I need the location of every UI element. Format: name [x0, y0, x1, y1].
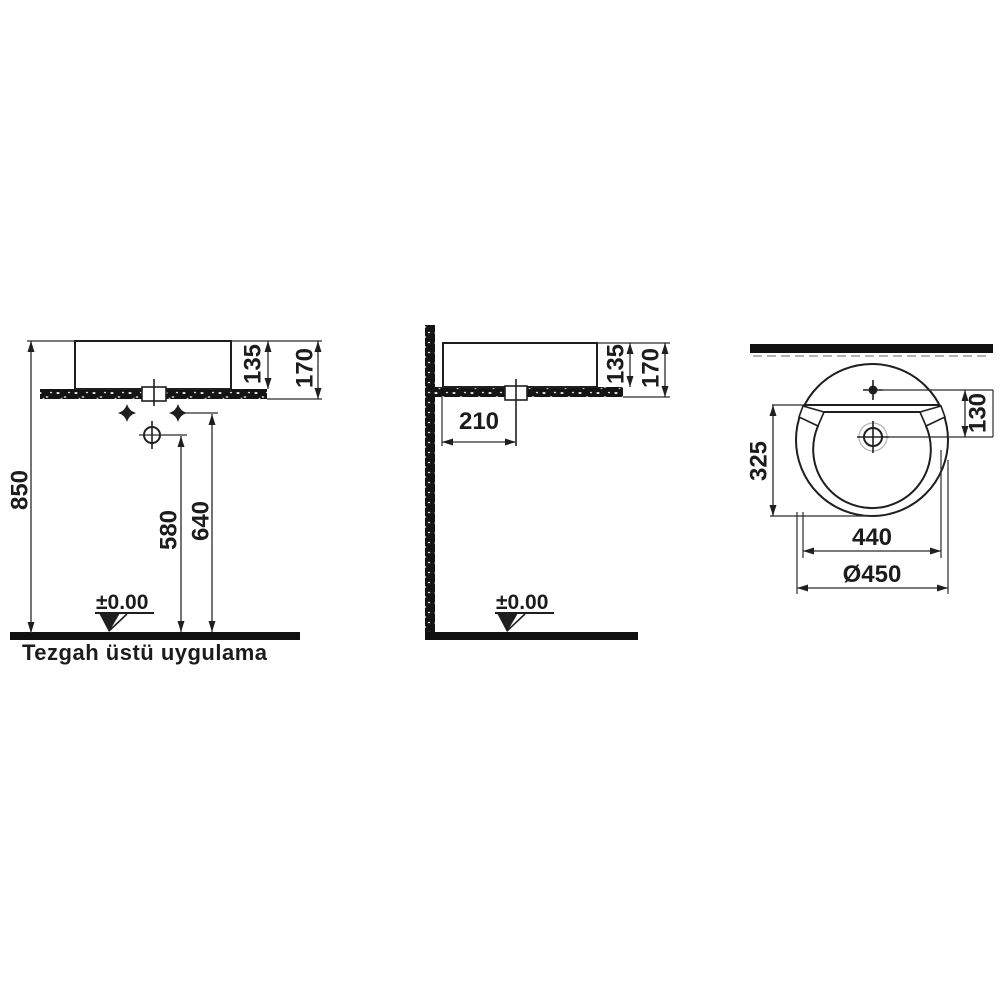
side-view: 210 135 170 ±0.00 [425, 325, 670, 640]
dim-440-label: 440 [852, 524, 892, 551]
basin-outline-front [75, 341, 231, 389]
dim-135-side-label: 135 [603, 344, 630, 384]
dim-580: 580 [156, 436, 185, 632]
dim-640-label: 640 [188, 501, 215, 541]
level-label-side: ±0.00 [496, 591, 548, 614]
drawing-caption: Tezgah üstü uygulama [22, 640, 268, 665]
level-mark-side: ±0.00 [495, 591, 554, 632]
floor-line-front [10, 632, 300, 640]
dim-325-label: 325 [746, 441, 773, 481]
fixing-hole-marker-right [169, 404, 187, 422]
dim-170-front-label: 170 [292, 348, 319, 388]
fixing-hole-marker-left [118, 404, 136, 422]
dim-210: 210 [442, 397, 516, 446]
washbasin-dimension-drawing: 850 580 640 135 [0, 0, 1000, 1000]
level-label-front: ±0.00 [96, 591, 148, 614]
front-view: 850 580 640 135 [7, 341, 323, 665]
wall-line-plan [750, 344, 993, 353]
basin-outline-side [443, 343, 597, 387]
dim-130-label: 130 [965, 393, 992, 433]
level-mark-front: ±0.00 [95, 591, 154, 632]
floor-line-side [425, 632, 638, 640]
dim-170-side-label: 170 [638, 348, 665, 388]
dim-210-label: 210 [459, 408, 499, 435]
top-view: 130 325 440 Ø450 [746, 344, 994, 594]
dim-450-label: Ø450 [843, 561, 902, 588]
dim-580-label: 580 [156, 510, 183, 550]
countertop-section-side [435, 387, 623, 397]
dim-170-front: 170 [267, 341, 322, 399]
technical-drawing-canvas: 850 580 640 135 [0, 0, 1000, 1000]
dim-135-front-label: 135 [240, 344, 267, 384]
dim-640: 640 [185, 413, 218, 632]
dim-850: 850 [7, 341, 76, 633]
wall-section-side [425, 325, 435, 640]
dim-850-label: 850 [7, 470, 34, 510]
